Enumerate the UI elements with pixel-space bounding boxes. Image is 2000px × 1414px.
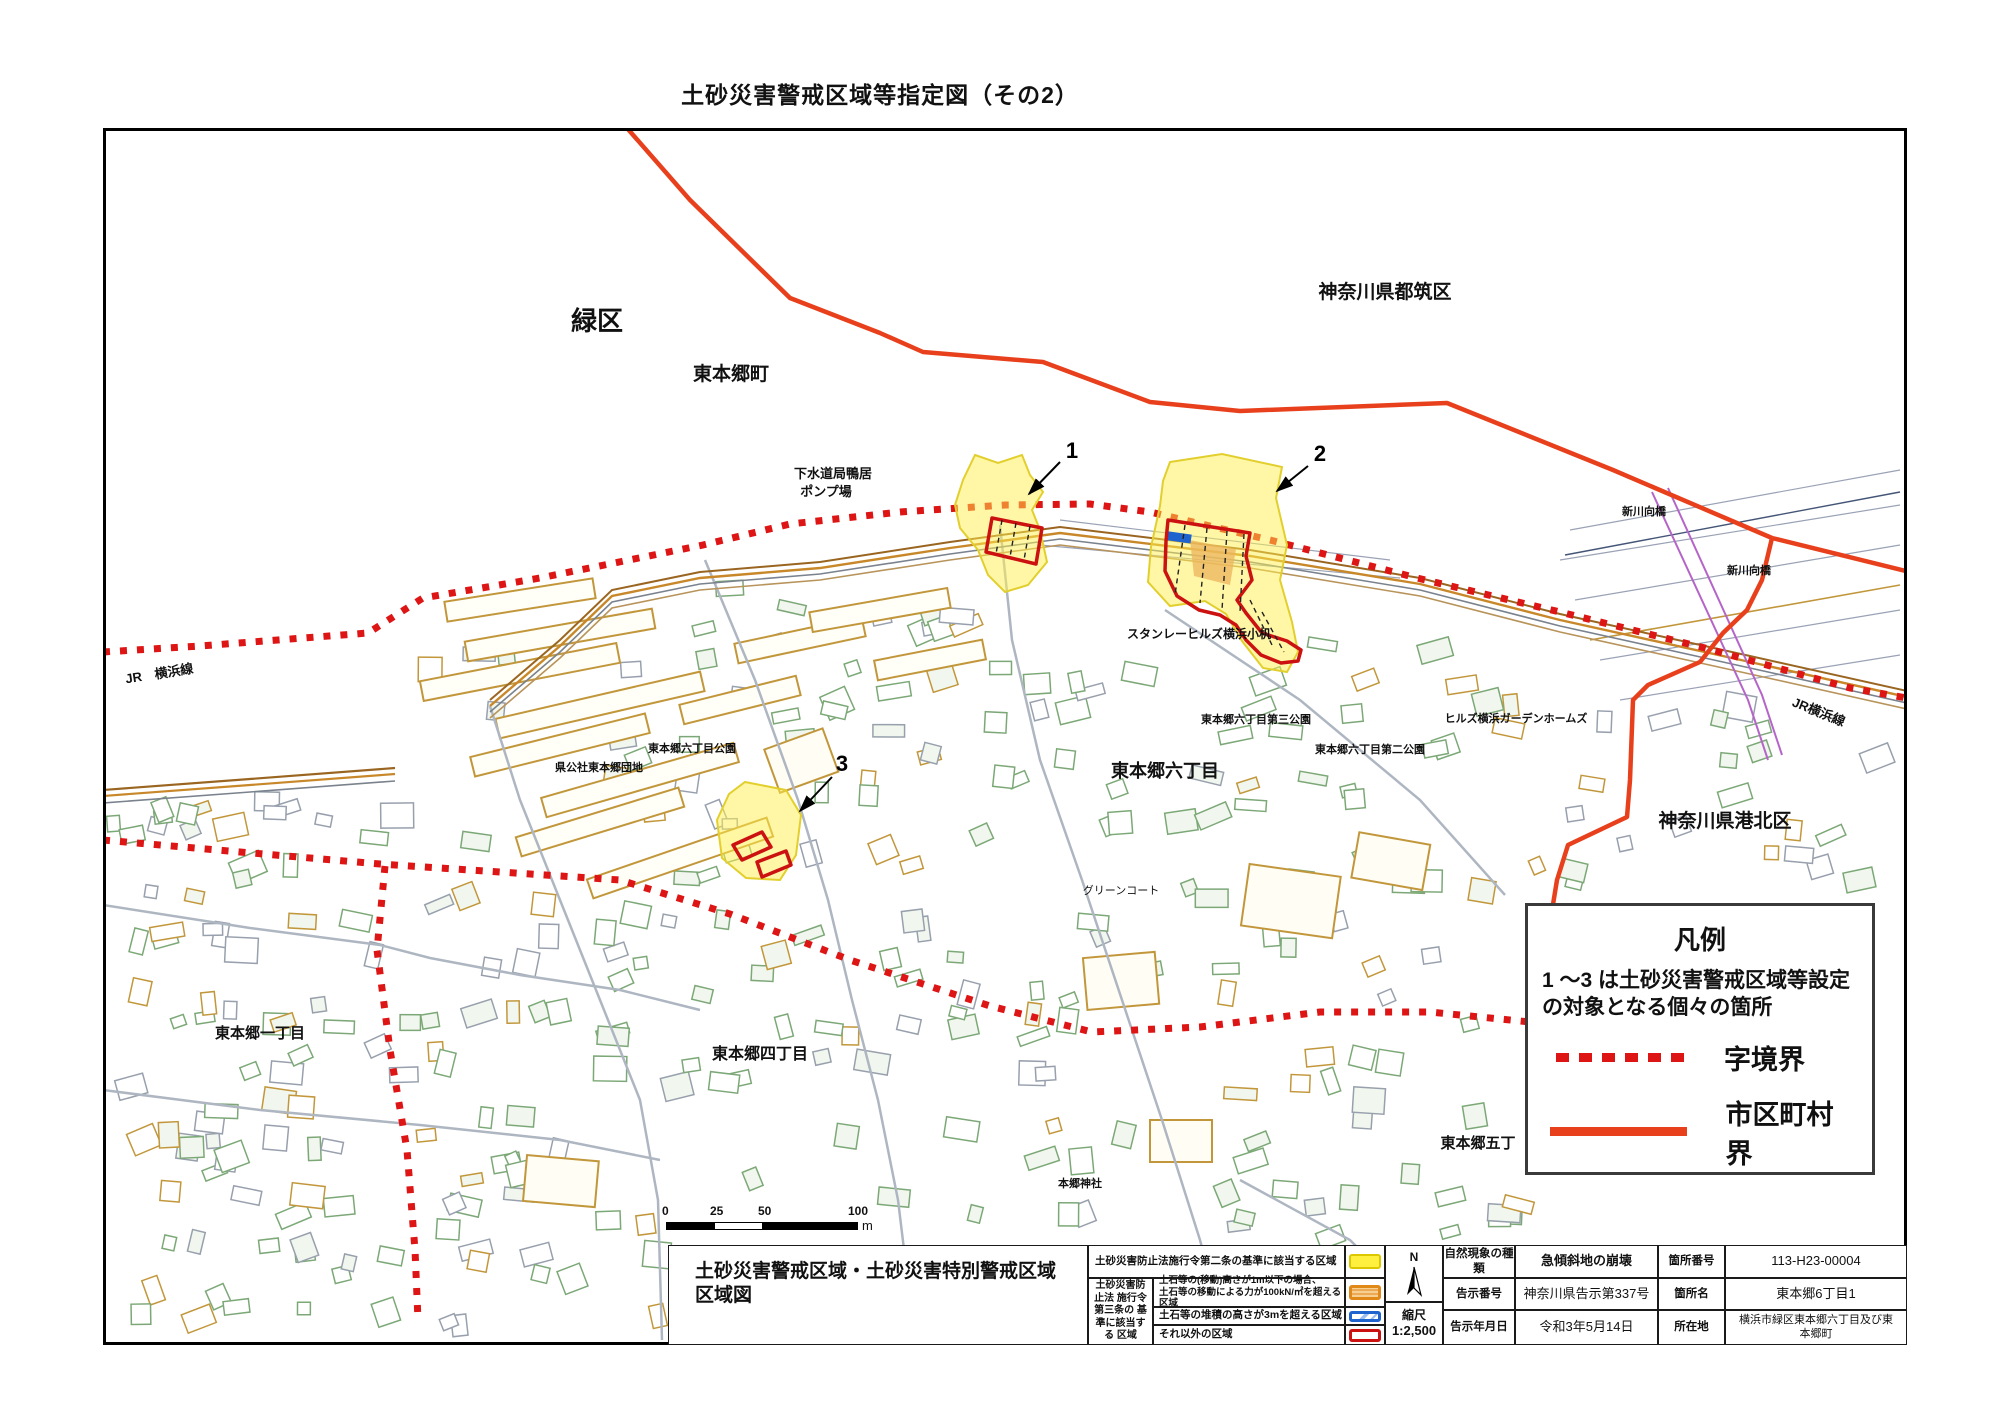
north-arrow-icon [1404, 1265, 1424, 1297]
info-value-phenomenon: 急傾斜地の崩壊 [1515, 1245, 1658, 1278]
north-label: N [1410, 1250, 1419, 1265]
yellow-zone-icon [1349, 1254, 1381, 1269]
map-sheet-title: 土砂災害警戒区域・土砂災害特別警戒区域 区域図 [668, 1245, 1088, 1345]
info-label-site-number: 箇所番号 [1658, 1245, 1725, 1278]
map-label: 緑区 [571, 306, 623, 336]
red-solid-line-icon [1550, 1127, 1687, 1136]
map-label: JR 横浜線 [124, 661, 195, 687]
map-label: スタンレーヒルズ横浜小机 [1127, 626, 1271, 641]
map-label: 新川向橋 [1727, 563, 1772, 577]
map-label: 神奈川県港北区 [1658, 809, 1791, 832]
zone-number-label: 2 [1314, 441, 1326, 466]
zone-number-label: 3 [836, 751, 848, 776]
map-sheet-title-line1: 土砂災害警戒区域・土砂災害特別警戒区域 [695, 1260, 1056, 1284]
scale-unit: m [862, 1218, 873, 1233]
zone-type-article3-group-label: 土砂災害防止法 施行令第三条の 基準に該当する 区域 [1088, 1278, 1153, 1345]
info-label-notice-date: 告示年月日 [1443, 1310, 1515, 1345]
scale-value: 1:2,500 [1392, 1323, 1436, 1339]
red-dashed-line-icon [1556, 1053, 1686, 1062]
scale-bar: m 02550100 [662, 1204, 892, 1244]
zone-type-other-label: それ以外の区域 [1153, 1325, 1345, 1345]
scale-tick: 0 [662, 1204, 669, 1218]
map-label: 東本郷五丁 [1440, 1134, 1515, 1152]
zone-type-article2-label: 土砂災害防止法施行令第二条の基準に該当する区域 [1088, 1245, 1345, 1278]
legend-item-aza-boundary: 字境界 [1542, 1038, 1858, 1077]
info-label-location: 所在地 [1658, 1310, 1725, 1345]
map-label: 東本郷六丁目第二公園 [1315, 742, 1425, 756]
map-sheet-title-line2: 区域図 [695, 1284, 752, 1308]
map-label: 東本郷六丁目公園 [648, 741, 736, 755]
map-label: 東本郷六丁目第三公園 [1201, 712, 1311, 726]
info-value-notice-number: 神奈川県告示第337号 [1515, 1278, 1658, 1310]
map-label: 下水道局鴨居 [794, 466, 872, 481]
map-label: 県公社東本郷団地 [555, 760, 643, 774]
info-value-site-number: 113-H23-00004 [1725, 1245, 1907, 1278]
zone-number-label: 1 [1066, 438, 1078, 463]
zone-type-debris1m-label: 土石等の(移動)高さが1m以下の場合、 土石等の移動による力が100kN/㎡を超… [1153, 1278, 1345, 1307]
legend-item-municipal-boundary: 市区町村界 [1542, 1093, 1858, 1171]
scale-cell: 縮尺 1:2,500 [1385, 1302, 1443, 1345]
map-label: 本郷神社 [1058, 1176, 1102, 1190]
scale-label: 縮尺 [1402, 1308, 1426, 1323]
map-label: 東本郷一丁目 [215, 1024, 305, 1042]
scale-bar-graphic [666, 1222, 858, 1230]
hazard-map-page: { "page": { "title": "土砂災害警戒区域等指定図（その2）"… [0, 0, 2000, 1414]
red-outline-zone-icon [1349, 1329, 1381, 1342]
legend-box: 凡例 1 ～3 は土砂災害警戒区域等設定の対象となる個々の箇所 字境界 市区町村… [1525, 903, 1875, 1175]
zone-symbol-cell [1345, 1245, 1385, 1278]
map-label: 神奈川県都筑区 [1318, 280, 1451, 303]
zone-type-debris3m-label: 土石等の堆積の高さが3mを超える区域 [1153, 1307, 1345, 1325]
info-label-site-name: 箇所名 [1658, 1278, 1725, 1310]
page-title: 土砂災害警戒区域等指定図（その2） [580, 76, 1180, 110]
legend-note: 1 ～3 は土砂災害警戒区域等設定の対象となる個々の箇所 [1542, 967, 1858, 1022]
orange-hatch-zone-icon [1349, 1285, 1381, 1300]
map-label: 東本郷六丁目 [1111, 760, 1219, 781]
map-label: 東本郷町 [693, 362, 769, 385]
north-arrow-cell: N [1385, 1245, 1443, 1302]
zone-symbol-cell [1345, 1325, 1385, 1345]
info-label-notice-number: 告示番号 [1443, 1278, 1515, 1310]
info-value-location: 横浜市緑区東本郷六丁目及び東本郷町 [1725, 1310, 1907, 1345]
map-label: 新川向橋 [1622, 504, 1667, 518]
map-canvas: 123 緑区東本郷町神奈川県都筑区下水道局鴨居ポンプ場スタンレーヒルズ横浜小机東… [0, 0, 2000, 1414]
scale-tick: 25 [710, 1204, 723, 1218]
legend-item-label: 字境界 [1724, 1038, 1805, 1077]
scale-tick: 50 [758, 1204, 771, 1218]
map-label: ポンプ場 [800, 484, 852, 499]
info-value-site-name: 東本郷6丁目1 [1725, 1278, 1907, 1310]
zone-pointer-arrow [1029, 462, 1060, 494]
map-label: JR横浜線 [1790, 694, 1848, 729]
info-label-phenomenon: 自然現象の種類 [1443, 1245, 1515, 1278]
map-label: ヒルズ横浜ガーデンホームズ [1445, 711, 1588, 725]
blue-hatch-zone-icon [1349, 1311, 1381, 1322]
zone-symbol-cell [1345, 1307, 1385, 1325]
scale-tick: 100 [848, 1204, 868, 1218]
map-label: 東本郷四丁目 [712, 1044, 808, 1063]
title-block: 土砂災害警戒区域・土砂災害特別警戒区域 区域図 土砂災害防止法施行令第二条の基準… [668, 1245, 1907, 1345]
legend-title: 凡例 [1542, 920, 1858, 957]
zone-symbol-cell [1345, 1278, 1385, 1307]
legend-item-label: 市区町村界 [1725, 1093, 1858, 1171]
info-value-notice-date: 令和3年5月14日 [1515, 1310, 1658, 1345]
map-label: グリーンコート [1083, 883, 1159, 897]
